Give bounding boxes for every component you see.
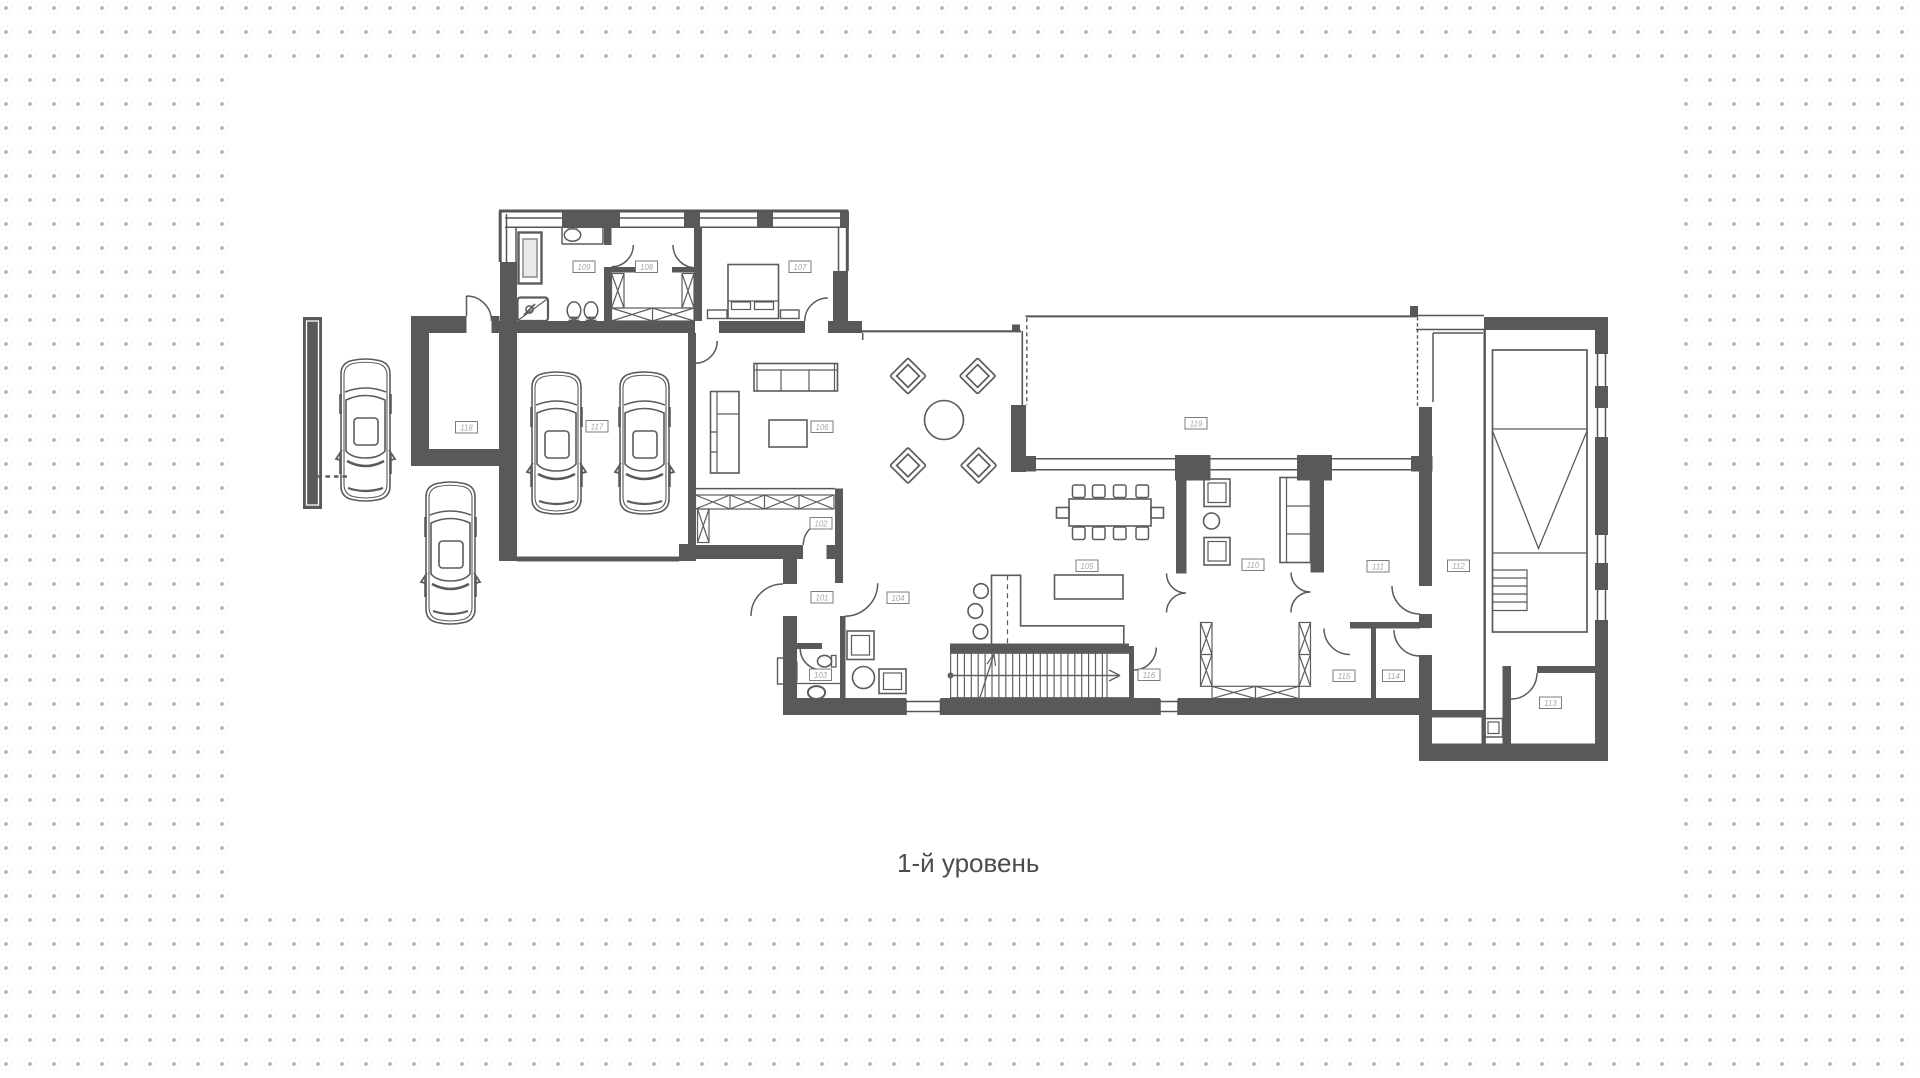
svg-text:107: 107 xyxy=(793,263,807,272)
svg-text:112: 112 xyxy=(1452,562,1465,571)
svg-text:1-й уровень: 1-й уровень xyxy=(897,848,1039,878)
svg-text:104: 104 xyxy=(891,594,905,603)
svg-text:111: 111 xyxy=(1372,563,1384,572)
svg-text:117: 117 xyxy=(591,423,604,432)
svg-text:115: 115 xyxy=(1338,672,1351,681)
svg-text:106: 106 xyxy=(815,423,829,432)
svg-text:103: 103 xyxy=(814,671,828,680)
svg-text:119: 119 xyxy=(1190,420,1203,429)
svg-text:102: 102 xyxy=(814,520,828,529)
svg-text:101: 101 xyxy=(815,594,828,603)
svg-text:110: 110 xyxy=(1247,561,1260,570)
svg-text:108: 108 xyxy=(640,263,654,272)
svg-text:116: 116 xyxy=(1143,671,1156,680)
svg-text:118: 118 xyxy=(460,424,473,433)
svg-text:114: 114 xyxy=(1387,672,1400,681)
svg-text:105: 105 xyxy=(1080,562,1094,571)
svg-text:113: 113 xyxy=(1544,699,1557,708)
svg-text:109: 109 xyxy=(577,263,591,272)
